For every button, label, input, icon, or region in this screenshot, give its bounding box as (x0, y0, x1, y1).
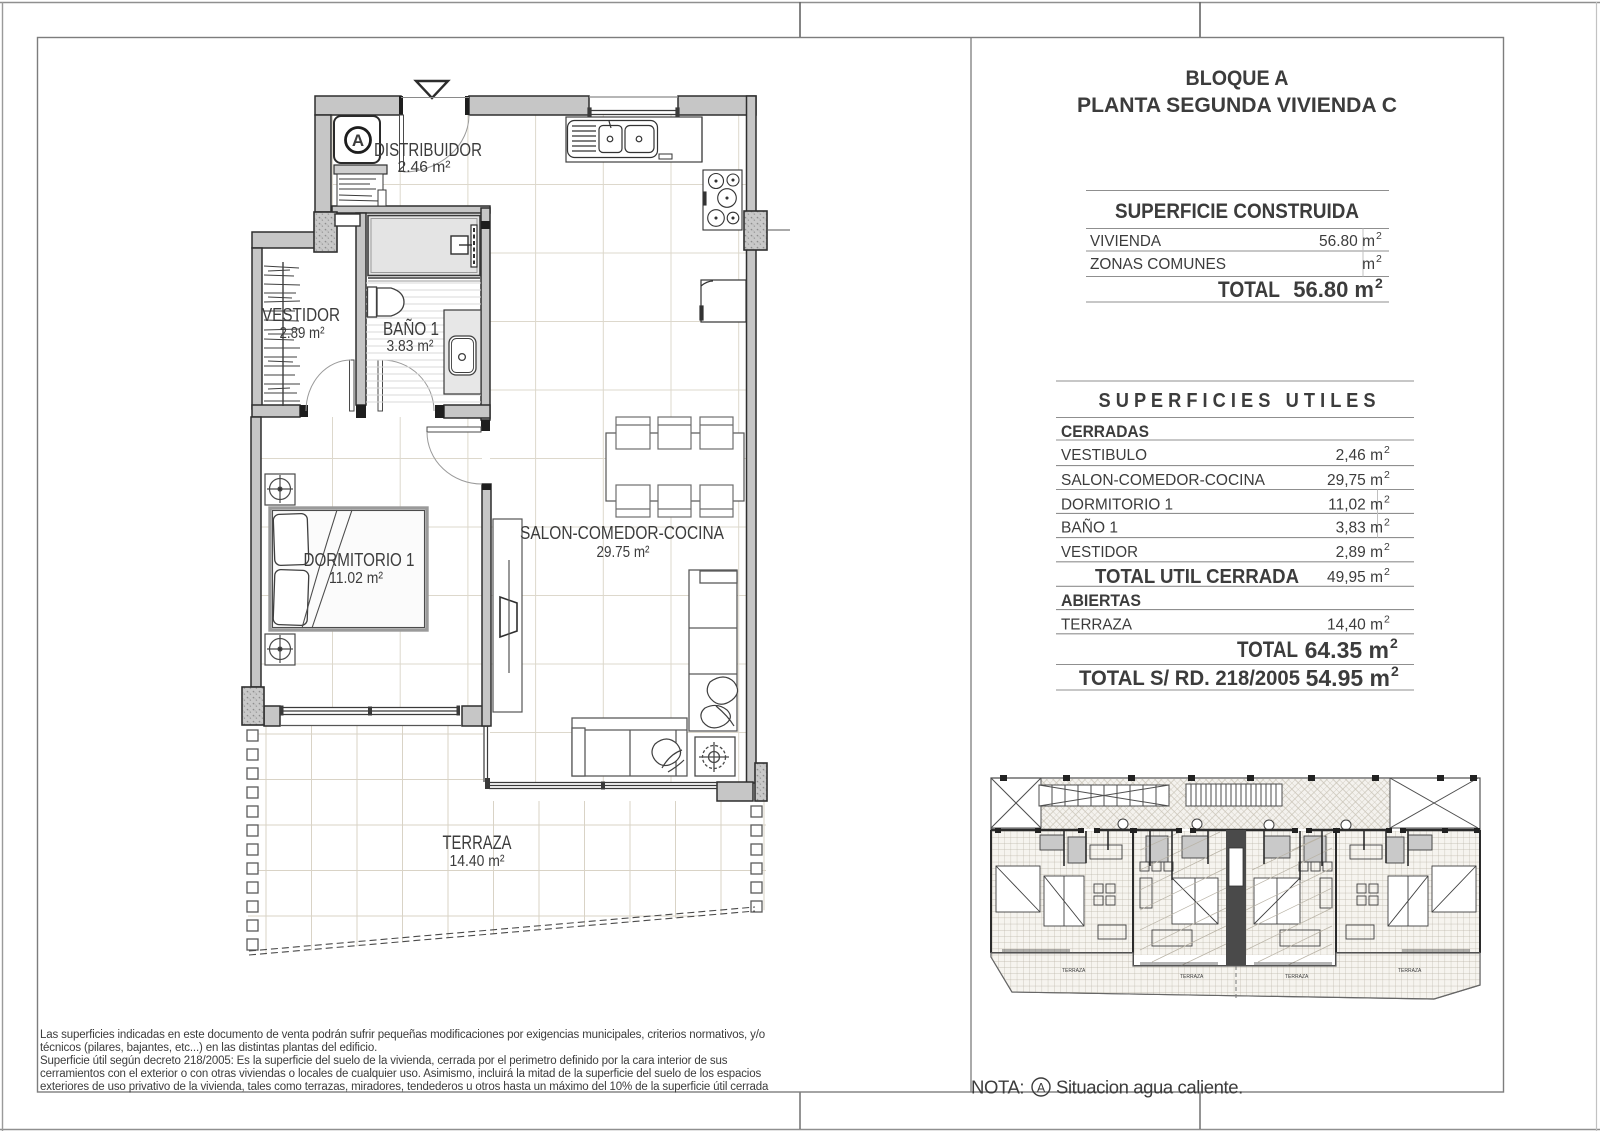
svg-text:49,95 m: 49,95 m (1327, 569, 1383, 586)
svg-text:Superficie útil según decreto: Superficie útil según decreto 218/2005: … (40, 1055, 728, 1067)
svg-text:BLOQUE A: BLOQUE A (1186, 67, 1289, 90)
svg-text:TERRAZA: TERRAZA (1398, 968, 1422, 974)
svg-text:2: 2 (1384, 566, 1390, 578)
svg-text:11,02 m: 11,02 m (1328, 497, 1383, 514)
svg-text:2.89 m²: 2.89 m² (280, 325, 326, 342)
svg-text:TERRAZA: TERRAZA (1062, 968, 1086, 974)
svg-text:TOTAL: TOTAL (1218, 277, 1280, 302)
svg-text:CERRADAS: CERRADAS (1061, 423, 1149, 441)
svg-text:2: 2 (1384, 444, 1390, 456)
svg-text:2: 2 (1384, 469, 1390, 481)
svg-text:TERRAZA: TERRAZA (1180, 974, 1204, 980)
svg-text:ABIERTAS: ABIERTAS (1061, 592, 1141, 610)
svg-text:2: 2 (1376, 230, 1382, 242)
svg-text:14.40 m²: 14.40 m² (450, 853, 506, 870)
svg-text:2: 2 (1390, 635, 1398, 651)
svg-text:BAÑO 1: BAÑO 1 (383, 318, 439, 339)
svg-text:29.75 m²: 29.75 m² (597, 544, 651, 561)
svg-text:2: 2 (1375, 275, 1383, 291)
svg-text:2: 2 (1391, 663, 1399, 679)
svg-text:29,75 m: 29,75 m (1327, 472, 1383, 489)
svg-text:64.35 m: 64.35 m (1305, 637, 1389, 663)
svg-text:VIVIENDA: VIVIENDA (1090, 233, 1162, 250)
svg-text:ZONAS COMUNES: ZONAS COMUNES (1090, 256, 1226, 273)
svg-text:exteriores de uso privativo de: exteriores de uso privativo de la vivien… (40, 1081, 769, 1093)
svg-text:VESTIBULO: VESTIBULO (1061, 447, 1147, 464)
svg-text:SALON-COMEDOR-COCINA: SALON-COMEDOR-COCINA (520, 522, 725, 543)
svg-text:TERRAZA: TERRAZA (1285, 974, 1309, 980)
svg-text:2: 2 (1384, 541, 1390, 553)
svg-text:2,46 m: 2,46 m (1336, 447, 1383, 464)
svg-text:VESTIDOR: VESTIDOR (1061, 544, 1138, 561)
svg-text:14,40 m: 14,40 m (1327, 617, 1383, 634)
svg-text:Situacion agua caliente.: Situacion agua caliente. (1056, 1077, 1243, 1098)
svg-text:DORMITORIO 1: DORMITORIO 1 (304, 549, 415, 570)
svg-text:TOTAL: TOTAL (1237, 637, 1298, 662)
svg-text:54.95 m: 54.95 m (1306, 665, 1390, 691)
svg-text:cerramientos con el exterior o: cerramientos con el exterior o con otras… (40, 1068, 761, 1080)
svg-text:PLANTA SEGUNDA VIVIENDA C: PLANTA SEGUNDA VIVIENDA C (1077, 94, 1397, 117)
svg-text:2: 2 (1384, 517, 1390, 529)
svg-text:DORMITORIO 1: DORMITORIO 1 (1061, 497, 1173, 514)
svg-text:A: A (1037, 1081, 1046, 1095)
svg-text:3.83 m²: 3.83 m² (387, 338, 435, 355)
svg-text:2: 2 (1384, 614, 1390, 626)
svg-text:2: 2 (1376, 253, 1382, 265)
svg-text:SALON-COMEDOR-COCINA: SALON-COMEDOR-COCINA (1061, 472, 1266, 489)
svg-text:VESTIDOR: VESTIDOR (262, 304, 340, 325)
svg-text:Las superficies indicadas en e: Las superficies indicadas en este docume… (40, 1029, 765, 1041)
svg-text:SUPERFICIE CONSTRUIDA: SUPERFICIE CONSTRUIDA (1115, 200, 1359, 223)
svg-text:NOTA:: NOTA: (971, 1077, 1024, 1098)
svg-text:TOTAL UTIL CERRADA: TOTAL UTIL CERRADA (1095, 565, 1299, 588)
svg-text:2,89 m: 2,89 m (1336, 544, 1383, 561)
svg-text:56.80 m: 56.80 m (1293, 277, 1374, 302)
svg-text:56.80 m: 56.80 m (1319, 233, 1375, 250)
svg-text:2.46 m²: 2.46 m² (398, 159, 452, 176)
svg-text:A: A (352, 131, 364, 150)
svg-text:técnicos (pilares, bajantes, e: técnicos (pilares, bajantes, etc...) en … (40, 1042, 377, 1054)
svg-text:DISTRIBUIDOR: DISTRIBUIDOR (374, 139, 482, 160)
svg-text:m: m (1362, 256, 1375, 273)
svg-text:11.02 m²: 11.02 m² (329, 570, 384, 587)
svg-text:TOTAL S/ RD. 218/2005: TOTAL S/ RD. 218/2005 (1079, 667, 1300, 690)
svg-text:BAÑO 1: BAÑO 1 (1061, 520, 1118, 537)
svg-text:TERRAZA: TERRAZA (1061, 617, 1133, 634)
svg-text:2: 2 (1384, 494, 1390, 506)
svg-text:TERRAZA: TERRAZA (443, 833, 512, 854)
svg-text:S U P E R F I C I E S U T I: S U P E R F I C I E S U T I L E S (1099, 390, 1376, 412)
svg-text:3,83 m: 3,83 m (1336, 520, 1383, 537)
